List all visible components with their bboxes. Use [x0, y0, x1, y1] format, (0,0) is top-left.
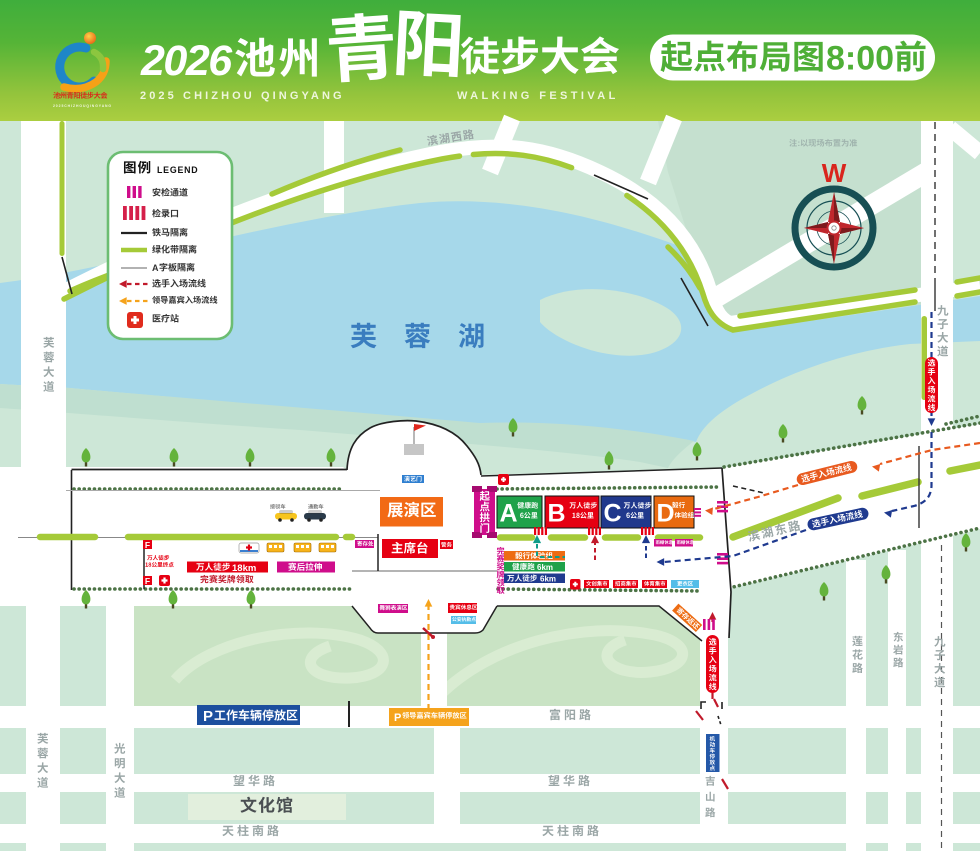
- svg-text:18km: 18km: [232, 563, 256, 574]
- svg-text:F: F: [145, 540, 150, 550]
- svg-text:F: F: [145, 576, 150, 586]
- svg-text:A: A: [500, 500, 518, 528]
- svg-text:W: W: [822, 158, 847, 188]
- svg-text:2 0 2 5 C H I Z H O U Q I N G: 2 0 2 5 C H I Z H O U Q I N G Y A N G: [53, 104, 111, 108]
- svg-text:P: P: [203, 708, 213, 725]
- svg-text:WALKING FESTIVAL: WALKING FESTIVAL: [457, 90, 619, 102]
- svg-text:A: A: [152, 263, 159, 273]
- svg-text:8:00: 8:00: [826, 40, 894, 78]
- svg-text:D: D: [657, 500, 675, 528]
- svg-text:2026: 2026: [140, 37, 233, 85]
- svg-text:6km: 6km: [540, 575, 556, 584]
- svg-text:6km: 6km: [537, 563, 553, 572]
- svg-text:P: P: [394, 712, 401, 724]
- svg-text:B: B: [548, 500, 566, 528]
- svg-text:2025 CHIZHOU QINGYANG: 2025 CHIZHOU QINGYANG: [140, 90, 345, 102]
- svg-text:C: C: [604, 500, 622, 528]
- svg-text:LEGEND: LEGEND: [157, 165, 198, 175]
- svg-text::: :: [798, 139, 801, 148]
